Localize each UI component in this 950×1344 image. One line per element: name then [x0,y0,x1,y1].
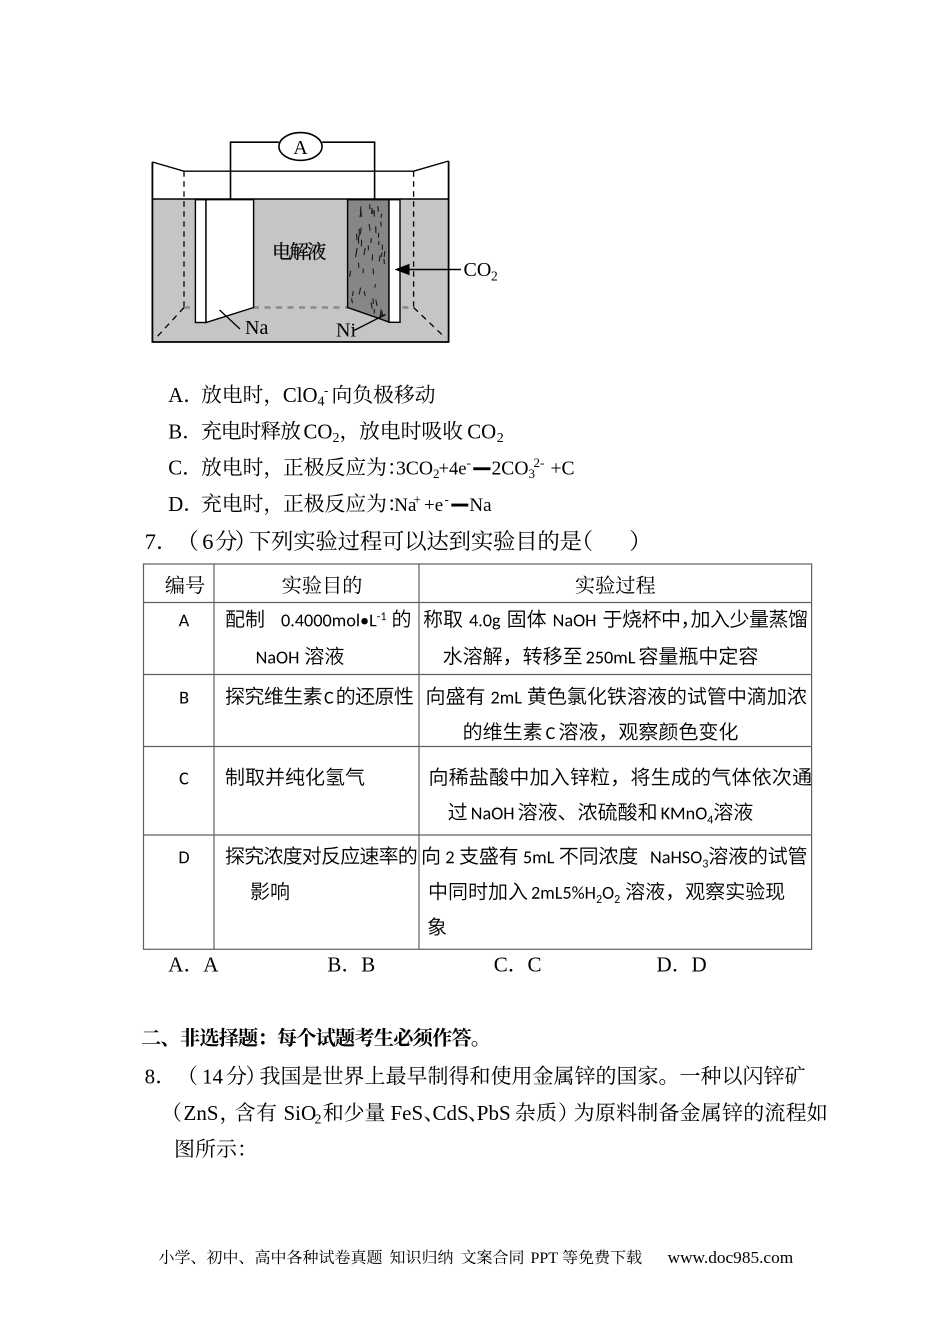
svg-text:A: A [168,384,183,407]
svg-text:D: D [692,953,707,977]
svg-text:2CO: 2CO [492,459,529,480]
svg-text:-: - [445,491,449,506]
svg-text:6: 6 [202,529,213,554]
svg-text:+4e: +4e [439,459,467,480]
svg-text:+: + [414,491,421,506]
svg-text:+C: +C [551,459,575,480]
svg-text:8: 8 [145,1064,156,1088]
svg-text:Na: Na [245,317,268,339]
svg-text:CdS: CdS [433,1101,469,1125]
svg-text:D: D [168,493,183,516]
svg-text:B: B [168,420,182,443]
svg-text:A: A [293,137,308,159]
svg-text:D: D [657,953,672,977]
svg-text:-: - [467,455,471,470]
svg-text:-: - [324,383,328,398]
svg-text:ClO: ClO [283,384,318,407]
svg-text:2: 2 [491,268,498,283]
svg-text:CO: CO [464,259,492,281]
svg-text:+e: +e [424,495,443,516]
svg-text:C: C [528,953,542,977]
svg-text:PPT: PPT [531,1250,559,1267]
svg-text:A: A [203,953,219,977]
svg-text:7: 7 [145,529,156,554]
svg-text:FeS: FeS [391,1101,424,1125]
svg-text:SiO: SiO [284,1101,317,1125]
svg-text:www.doc985.com: www.doc985.com [668,1248,794,1267]
svg-text:CO: CO [467,420,496,443]
svg-text:CO: CO [304,420,333,443]
svg-text:Ni: Ni [336,320,356,342]
svg-text:C: C [168,457,182,480]
svg-text:2: 2 [315,1113,322,1128]
svg-text:ZnS: ZnS [184,1101,219,1125]
svg-text:2: 2 [497,431,504,446]
svg-text:C: C [494,953,508,977]
svg-text:A: A [168,953,184,977]
svg-text:B: B [327,953,341,977]
svg-text:-: - [540,455,544,470]
svg-text:PbS: PbS [477,1101,511,1125]
svg-text:B: B [361,953,375,977]
svg-text:2: 2 [333,431,340,446]
svg-text:Na: Na [469,495,492,516]
svg-text:14: 14 [202,1064,224,1088]
svg-text:3CO: 3CO [396,459,433,480]
